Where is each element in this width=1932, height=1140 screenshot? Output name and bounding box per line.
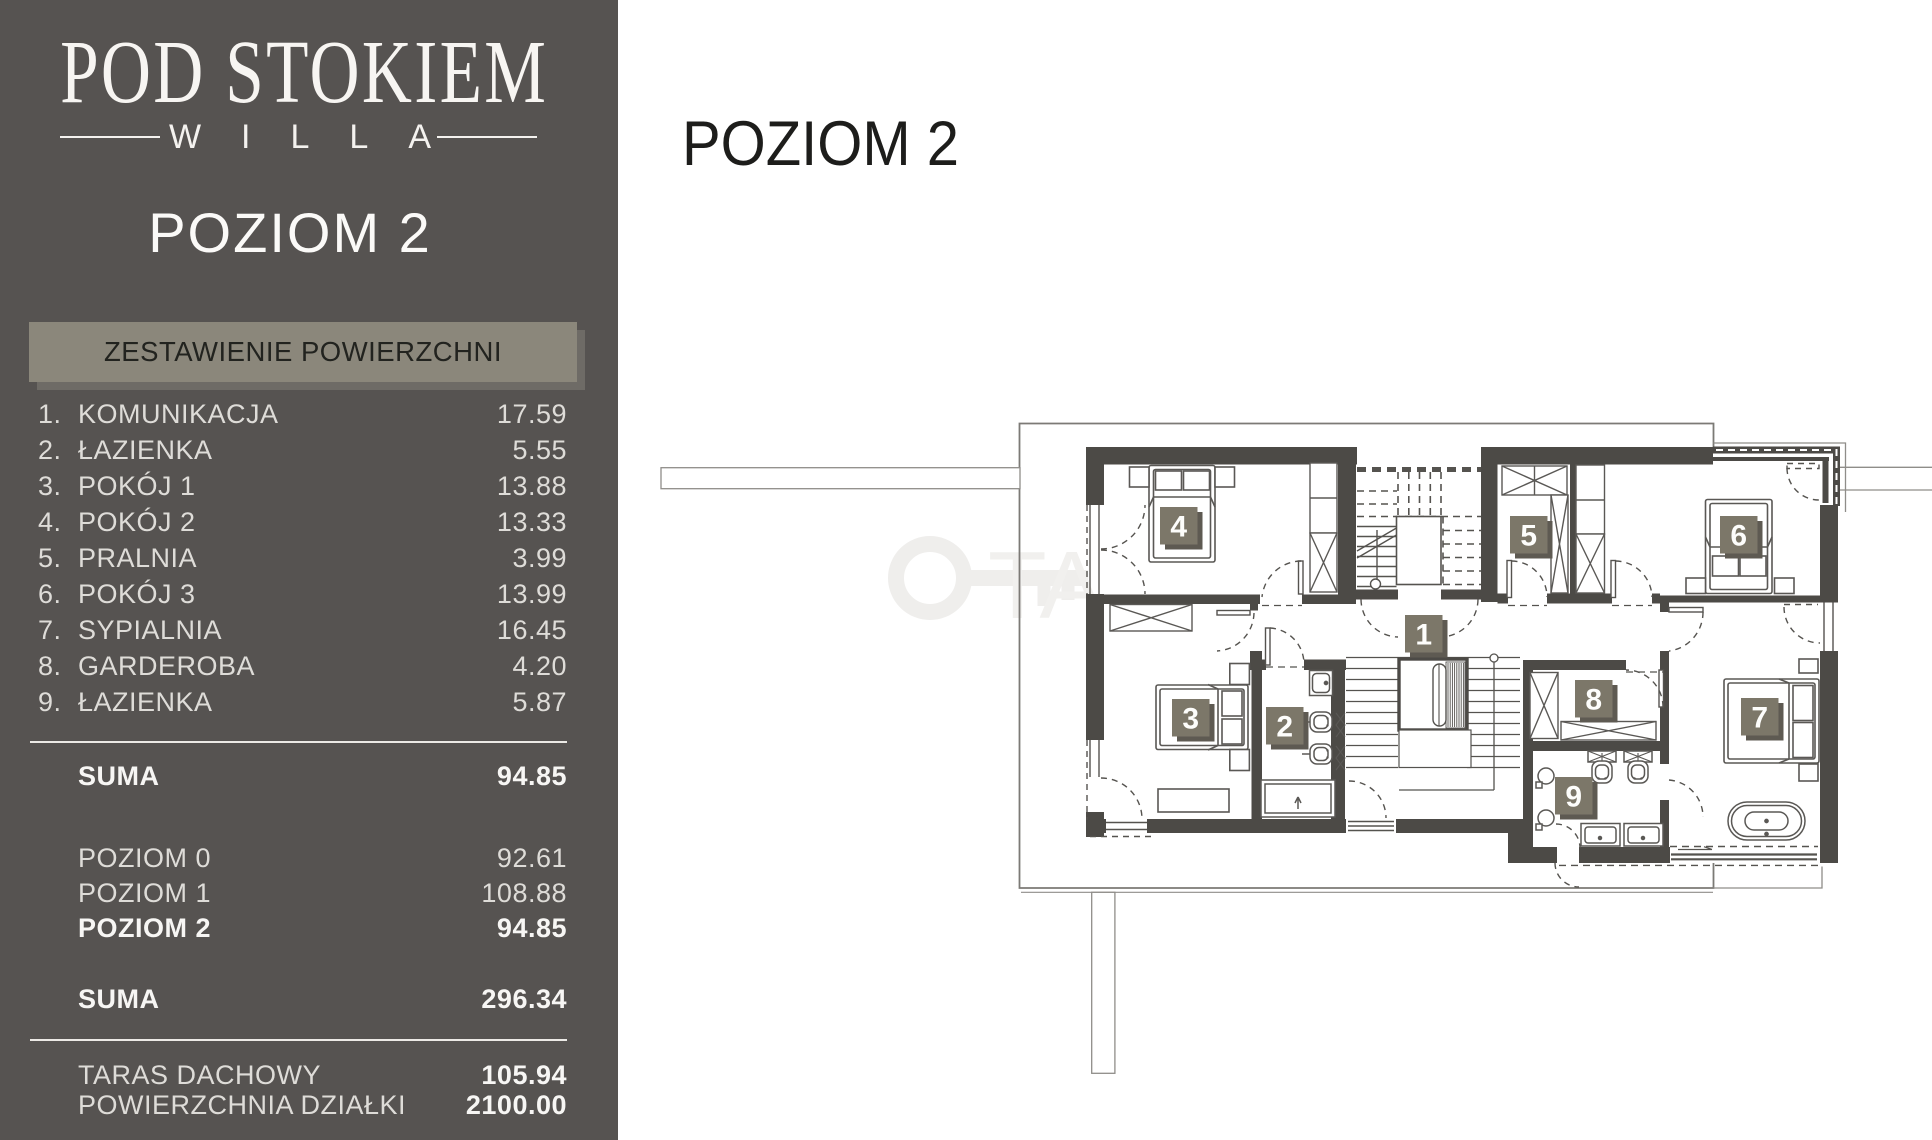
svg-text:5: 5	[1520, 520, 1537, 553]
svg-text:2: 2	[1276, 711, 1293, 744]
svg-text:3: 3	[1182, 703, 1199, 736]
svg-text:6: 6	[1730, 520, 1747, 553]
svg-text:7: 7	[1751, 702, 1768, 735]
svg-text:4: 4	[1170, 511, 1187, 544]
svg-text:1: 1	[1415, 619, 1432, 652]
svg-text:8: 8	[1585, 684, 1602, 717]
svg-text:9: 9	[1565, 781, 1582, 814]
